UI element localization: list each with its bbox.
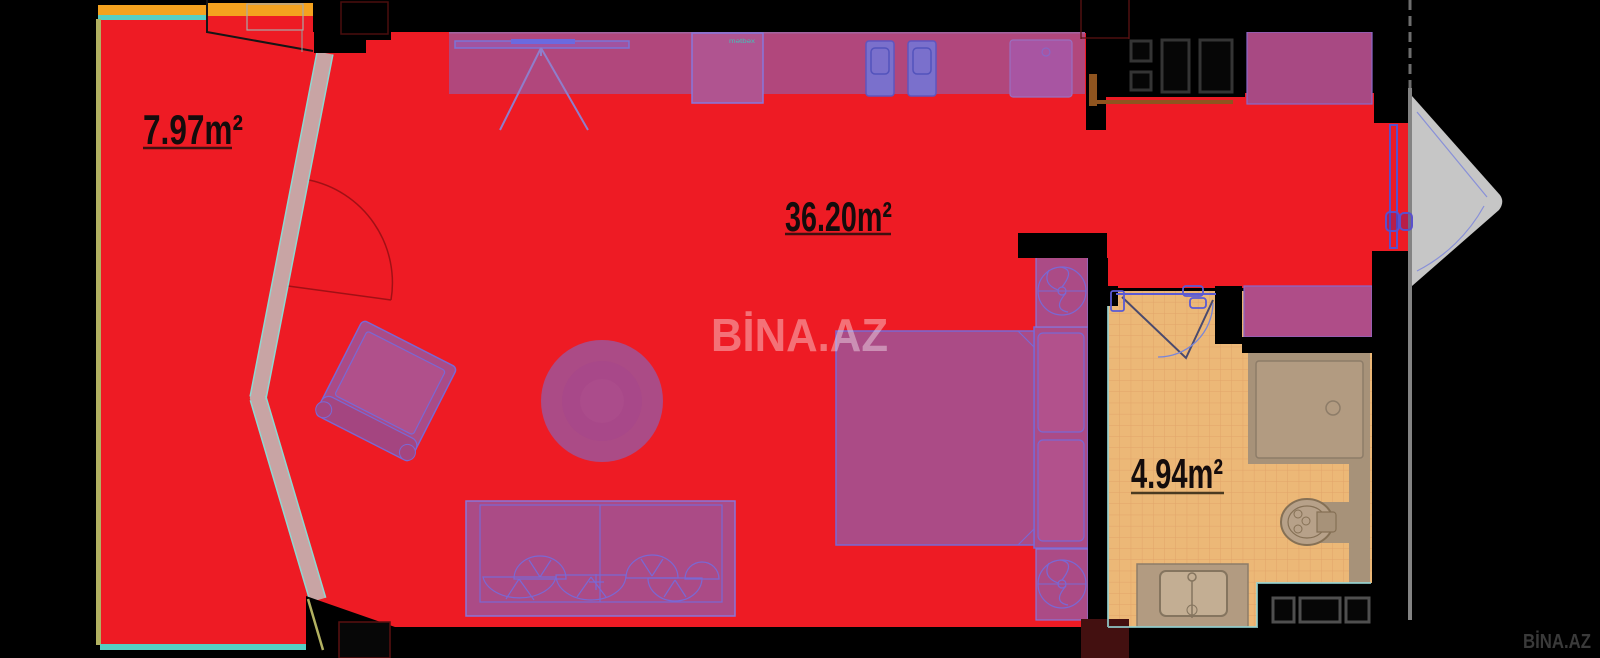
svg-text:7.97m²: 7.97m² (143, 106, 243, 153)
svg-text:BİNA.AZ: BİNA.AZ (711, 309, 888, 361)
svg-text:BİNA.AZ: BİNA.AZ (1523, 630, 1591, 653)
svg-text:mətbəx: mətbəx (729, 38, 756, 45)
svg-text:4.94m²: 4.94m² (1131, 450, 1223, 497)
